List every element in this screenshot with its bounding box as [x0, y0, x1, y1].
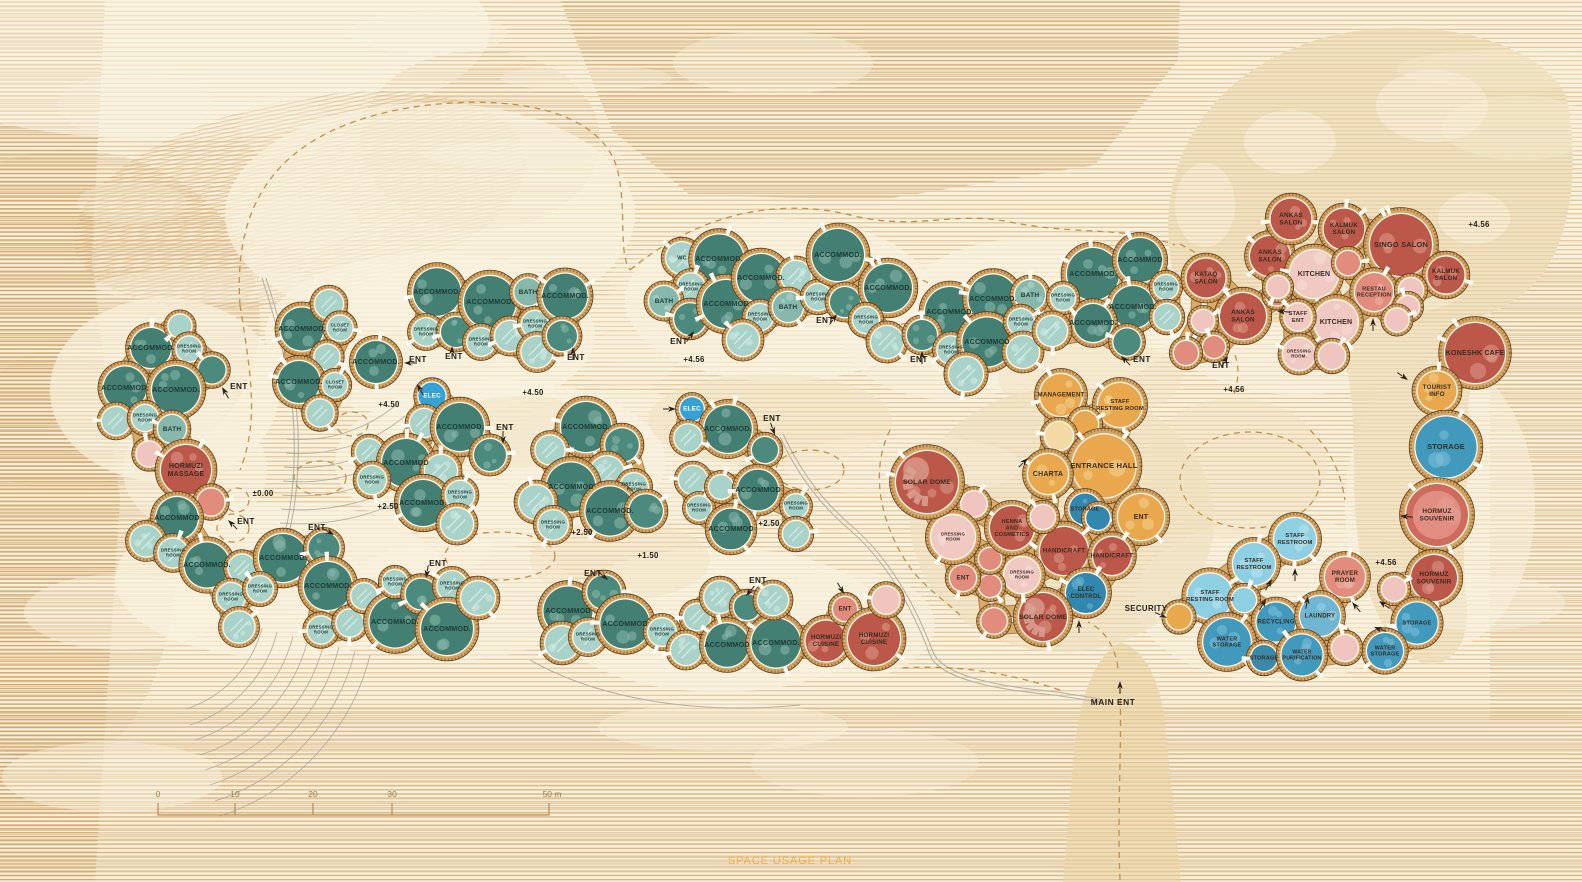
svg-text:ENT: ENT: [670, 337, 688, 346]
svg-text:HENNA: HENNA: [1002, 519, 1023, 525]
svg-text:ENT: ENT: [308, 523, 326, 532]
svg-text:ROOM: ROOM: [166, 553, 180, 558]
svg-text:0: 0: [156, 789, 161, 799]
svg-text:PRAYER: PRAYER: [1332, 570, 1359, 577]
svg-text:STORAGE: STORAGE: [1371, 652, 1400, 658]
svg-text:KATAQ: KATAQ: [1195, 271, 1218, 278]
svg-text:STORAGE: STORAGE: [1403, 620, 1432, 626]
svg-text:ACCOMMOD: ACCOMMOD: [704, 640, 750, 649]
svg-text:ROOM: ROOM: [445, 586, 459, 591]
svg-text:ENT: ENT: [1212, 361, 1230, 370]
svg-text:ROOM: ROOM: [419, 332, 433, 337]
svg-text:HORMUZI: HORMUZI: [811, 634, 841, 641]
svg-text:ROOM: ROOM: [182, 349, 196, 354]
svg-text:ANKAS: ANKAS: [1258, 249, 1282, 256]
svg-text:HORMUZ: HORMUZ: [1422, 508, 1451, 515]
svg-text:ROOM: ROOM: [811, 297, 825, 302]
svg-text:30: 30: [387, 789, 397, 799]
svg-text:ACCOMMOD.: ACCOMMOD.: [101, 383, 149, 392]
svg-text:ENTRANCE HALL: ENTRANCE HALL: [1070, 461, 1137, 470]
svg-text:ENT: ENT: [1133, 355, 1151, 364]
svg-text:ROOM: ROOM: [1335, 577, 1355, 584]
svg-text:RESTROOM: RESTROOM: [1236, 565, 1271, 571]
svg-text:KALMUK: KALMUK: [1330, 222, 1358, 229]
svg-text:ACCOMMOD: ACCOMMOD: [1117, 255, 1163, 264]
svg-text:ACCOMMOD: ACCOMMOD: [548, 482, 594, 491]
svg-text:INFO: INFO: [1429, 391, 1445, 398]
svg-text:CHARTA: CHARTA: [1033, 471, 1063, 478]
svg-text:ENT: ENT: [763, 414, 781, 423]
svg-text:ACCOMMOD.: ACCOMMOD.: [562, 422, 610, 431]
svg-text:BATH: BATH: [519, 289, 538, 296]
svg-text:ACCOMMOD.: ACCOMMOD.: [259, 553, 307, 562]
svg-text:SALON: SALON: [1258, 256, 1282, 263]
svg-text:±0.00: ±0.00: [253, 489, 274, 498]
svg-text:STAFF: STAFF: [1244, 558, 1264, 564]
svg-text:HORMUZI: HORMUZI: [859, 632, 889, 639]
svg-text:ENT: ENT: [237, 517, 255, 526]
svg-text:10: 10: [230, 789, 240, 799]
svg-text:ACCOMMOD.: ACCOMMOD.: [183, 560, 231, 569]
svg-text:SOUVENIR: SOUVENIR: [1417, 578, 1452, 585]
svg-text:RESTING ROOM: RESTING ROOM: [1096, 406, 1144, 412]
svg-text:ACCOMMOD: ACCOMMOD: [383, 458, 429, 467]
svg-text:+4.56: +4.56: [1375, 558, 1397, 567]
svg-text:AND: AND: [1006, 525, 1019, 531]
svg-text:HANDICRAFT: HANDICRAFT: [1091, 553, 1134, 560]
svg-text:KITCHEN: KITCHEN: [1320, 319, 1353, 326]
svg-text:ROOM: ROOM: [224, 597, 238, 602]
svg-text:ROOM: ROOM: [474, 342, 488, 347]
svg-text:+4.56: +4.56: [683, 355, 705, 364]
svg-text:ACCOMMOD: ACCOMMOD: [545, 606, 591, 615]
svg-text:ACCOMMOD.: ACCOMMOD.: [371, 617, 419, 626]
svg-text:SPACE USAGE PLAN: SPACE USAGE PLAN: [728, 855, 852, 867]
svg-text:ROOM: ROOM: [253, 589, 267, 594]
svg-text:ACCOMMOD.: ACCOMMOD.: [814, 250, 862, 259]
svg-text:ENT: ENT: [230, 382, 248, 391]
svg-text:ROOM: ROOM: [1014, 322, 1028, 327]
svg-text:+4.56: +4.56: [1223, 385, 1245, 394]
svg-text:ACCOMMOD.: ACCOMMOD.: [704, 424, 752, 433]
svg-text:BATH: BATH: [655, 298, 674, 305]
svg-text:ENT: ENT: [1292, 318, 1304, 324]
svg-text:ROOM: ROOM: [684, 287, 698, 292]
svg-text:KONESHK CAFE: KONESHK CAFE: [1446, 350, 1505, 357]
svg-text:ANKAS: ANKAS: [1279, 212, 1303, 219]
svg-text:ELEC: ELEC: [1078, 587, 1095, 593]
svg-text:ACCOMMOD.: ACCOMMOD.: [399, 498, 447, 507]
svg-text:ROOM: ROOM: [692, 508, 706, 513]
svg-text:SECURITY: SECURITY: [1125, 604, 1168, 613]
svg-text:ROOM: ROOM: [333, 328, 347, 333]
svg-text:+4.56: +4.56: [1468, 220, 1490, 229]
svg-text:ENT: ENT: [496, 423, 514, 432]
svg-text:+1.50: +1.50: [637, 551, 659, 560]
svg-text:ACCOMMOD.: ACCOMMOD.: [926, 307, 974, 316]
svg-text:CUISINE: CUISINE: [861, 639, 888, 646]
svg-text:ENT: ENT: [584, 569, 602, 578]
svg-text:TOURIST: TOURIST: [1423, 384, 1451, 391]
svg-text:RECEPTION: RECEPTION: [1357, 293, 1391, 299]
svg-text:ROOM: ROOM: [1015, 575, 1029, 580]
svg-text:ACCOMMOD.: ACCOMMOD.: [969, 294, 1017, 303]
svg-text:ROOM: ROOM: [581, 637, 595, 642]
svg-text:HANDICRAFT: HANDICRAFT: [1043, 548, 1086, 555]
svg-text:STAFF: STAFF: [1200, 590, 1220, 596]
svg-text:LAUNDRY: LAUNDRY: [1305, 614, 1336, 620]
svg-text:SALON: SALON: [1194, 278, 1218, 285]
svg-text:ELEC: ELEC: [423, 393, 441, 400]
svg-text:ACCOMMOD.: ACCOMMOD.: [466, 297, 514, 306]
svg-text:ACCOMMOD: ACCOMMOD: [154, 513, 200, 522]
svg-text:RESTROOM: RESTROOM: [1277, 540, 1312, 546]
svg-text:ACCOMMOD: ACCOMMOD: [708, 524, 754, 533]
svg-text:ENT: ENT: [910, 355, 928, 364]
svg-text:ROOM: ROOM: [528, 324, 542, 329]
svg-text:ENT: ENT: [749, 576, 767, 585]
svg-text:ROOM: ROOM: [453, 495, 467, 500]
svg-text:ENT: ENT: [839, 606, 852, 613]
svg-text:BATH: BATH: [779, 304, 798, 311]
svg-text:ACCOMMOD.: ACCOMMOD.: [152, 385, 200, 394]
svg-text:ROOM: ROOM: [1056, 298, 1070, 303]
svg-text:20: 20: [308, 789, 318, 799]
svg-text:WATER: WATER: [1375, 645, 1396, 651]
svg-text:SALON: SALON: [1333, 229, 1356, 236]
svg-text:STAFF: STAFF: [1285, 533, 1305, 539]
svg-text:ACCOMMOD.: ACCOMMOD.: [127, 343, 175, 352]
svg-text:ACCOMMOD.: ACCOMMOD.: [413, 287, 461, 296]
svg-text:KALMUK: KALMUK: [1432, 268, 1460, 275]
svg-text:+2.50: +2.50: [377, 502, 399, 511]
svg-text:STAFF: STAFF: [1288, 311, 1308, 317]
svg-text:KITCHEN: KITCHEN: [1298, 271, 1331, 278]
svg-text:ACCOMMOD: ACCOMMOD: [735, 485, 781, 494]
svg-text:ANKAS: ANKAS: [1231, 309, 1255, 316]
svg-text:ACCOMMOD.: ACCOMMOD.: [695, 254, 743, 263]
svg-text:+4.50: +4.50: [522, 388, 544, 397]
svg-text:ROOM: ROOM: [328, 385, 342, 390]
svg-text:HORMUZI: HORMUZI: [169, 463, 203, 470]
svg-text:STORAGE: STORAGE: [1427, 442, 1465, 451]
svg-text:HORMUZ: HORMUZ: [1419, 571, 1448, 578]
svg-text:ACCOMMOD.: ACCOMMOD.: [436, 422, 484, 431]
svg-text:COSMETICS: COSMETICS: [994, 532, 1029, 538]
svg-text:RECYCLING: RECYCLING: [1257, 620, 1294, 626]
svg-text:SOLAR DOME: SOLAR DOME: [903, 479, 951, 486]
svg-text:SOLAR DOME: SOLAR DOME: [1019, 614, 1067, 621]
svg-text:ROOM: ROOM: [388, 582, 402, 587]
svg-text:ROOM: ROOM: [946, 537, 960, 542]
svg-text:ACCOMMOD.: ACCOMMOD.: [586, 506, 634, 515]
svg-text:ACCOMMOD.: ACCOMMOD.: [1069, 269, 1117, 278]
svg-text:ACCOMMOD.: ACCOMMOD.: [278, 324, 326, 333]
svg-text:STORAGE: STORAGE: [1213, 643, 1242, 649]
svg-text:STAFF: STAFF: [1110, 399, 1130, 405]
svg-text:ACCOMMOD.: ACCOMMOD.: [352, 357, 400, 366]
svg-text:ELEC: ELEC: [683, 406, 701, 413]
svg-text:+2.50: +2.50: [758, 519, 780, 528]
svg-text:RESTAU: RESTAU: [1362, 286, 1386, 292]
svg-text:ACCOMMOD: ACCOMMOD: [964, 337, 1010, 346]
svg-text:STORAGE: STORAGE: [1071, 506, 1100, 512]
svg-text:ROOM.: ROOM.: [1291, 354, 1307, 359]
svg-text:ROOM: ROOM: [944, 350, 958, 355]
svg-text:SOUVENIR: SOUVENIR: [1420, 515, 1455, 522]
svg-text:BATH: BATH: [1021, 292, 1040, 299]
svg-text:+2.50: +2.50: [571, 528, 593, 537]
svg-text:+4.50: +4.50: [378, 400, 400, 409]
svg-text:ACCOMMOD.: ACCOMMOD.: [1069, 318, 1117, 327]
svg-text:ACCOMMOD.: ACCOMMOD.: [304, 581, 352, 590]
svg-text:BATH: BATH: [163, 426, 182, 433]
svg-text:MAIN ENT: MAIN ENT: [1091, 697, 1136, 707]
svg-text:ENT: ENT: [1134, 514, 1149, 521]
svg-text:ROOM: ROOM: [1159, 287, 1173, 292]
svg-text:ACCOMMOD.: ACCOMMOD.: [1109, 302, 1157, 311]
svg-text:PURIFICATION: PURIFICATION: [1283, 655, 1322, 661]
svg-text:ACCOMMOD.: ACCOMMOD.: [423, 624, 471, 633]
svg-text:ENT: ENT: [816, 316, 834, 325]
svg-text:MASSAGE: MASSAGE: [168, 471, 205, 478]
svg-text:RESTING ROOM: RESTING ROOM: [1186, 597, 1234, 603]
svg-text:ACCOMMOD.: ACCOMMOD.: [737, 273, 785, 282]
svg-text:ROOM: ROOM: [627, 487, 641, 492]
svg-text:WC: WC: [677, 255, 687, 261]
svg-text:ACCOMMOD: ACCOMMOD: [602, 619, 648, 628]
svg-text:ROOM: ROOM: [546, 525, 560, 530]
svg-text:ACCOMMOD: ACCOMMOD: [703, 299, 749, 308]
svg-text:ROOM: ROOM: [314, 630, 328, 635]
svg-text:CONTROL: CONTROL: [1070, 594, 1101, 600]
svg-text:SALON: SALON: [1279, 219, 1303, 226]
svg-text:ROOM: ROOM: [138, 418, 152, 423]
svg-text:ENT: ENT: [567, 353, 585, 362]
svg-text:ROOM: ROOM: [753, 317, 767, 322]
svg-text:SALON: SALON: [1435, 275, 1458, 282]
svg-text:SINGO SALON: SINGO SALON: [1374, 240, 1428, 249]
svg-text:MANAGEMENT: MANAGEMENT: [1037, 392, 1084, 399]
svg-text:50 m: 50 m: [543, 789, 562, 799]
svg-text:ENT: ENT: [429, 559, 447, 568]
svg-text:CUISINE: CUISINE: [813, 641, 840, 648]
svg-text:ACCOMMOD.: ACCOMMOD.: [752, 638, 800, 647]
svg-text:ROOM: ROOM: [365, 480, 379, 485]
svg-text:ACCOMMOD.: ACCOMMOD.: [275, 377, 323, 386]
svg-text:STORAGE: STORAGE: [1250, 655, 1279, 661]
svg-text:ACCOMMOD.: ACCOMMOD.: [541, 291, 589, 300]
svg-text:ROOM: ROOM: [789, 506, 803, 511]
svg-text:ENT: ENT: [957, 575, 970, 582]
svg-text:ROOM: ROOM: [859, 320, 873, 325]
svg-text:ACCOMMOD.: ACCOMMOD.: [864, 283, 912, 292]
svg-text:SALON: SALON: [1231, 316, 1255, 323]
svg-text:ROOM: ROOM: [655, 632, 669, 637]
svg-text:WATER: WATER: [1217, 636, 1238, 642]
